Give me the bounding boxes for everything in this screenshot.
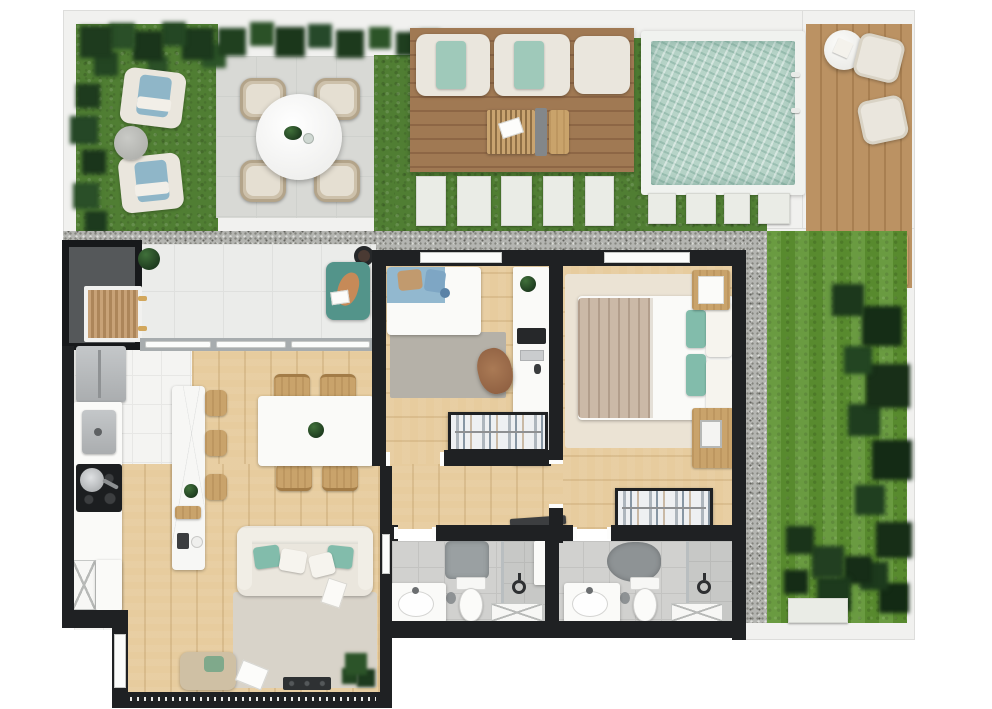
door-jamb — [549, 504, 563, 508]
master-window — [604, 252, 690, 263]
master-duvet-fold — [650, 298, 653, 418]
bay-window-left — [114, 634, 126, 688]
bath2-stone-mat — [607, 542, 661, 582]
lawn-white-pad — [788, 598, 848, 623]
bath2-bin — [620, 592, 630, 604]
cutting-board — [175, 506, 201, 519]
media-console — [283, 677, 331, 690]
wardrobe-rod — [455, 431, 542, 433]
sofa-backrest — [241, 528, 369, 544]
sliding-door-pane-3 — [291, 341, 370, 348]
island-plant — [184, 484, 198, 498]
bar-stool-1 — [205, 390, 227, 416]
floor-plan-canvas — [0, 0, 992, 709]
sofa-teal-cushion-1 — [253, 544, 282, 569]
wall-bath-top-c — [611, 525, 745, 541]
dining-chair-s2 — [322, 464, 358, 491]
bath2-basin — [572, 591, 608, 617]
bath1-basin — [398, 591, 434, 617]
wall-bath-bottom — [380, 621, 745, 638]
bath1-toilet-bowl — [459, 588, 483, 622]
bath2-faucet — [586, 587, 593, 594]
lattice-cabinet — [72, 560, 96, 610]
wall-living-kids — [372, 250, 386, 466]
door-jamb — [549, 460, 563, 464]
bath1-window-slit — [382, 534, 390, 574]
door-jamb — [440, 452, 444, 466]
desk-plant — [520, 276, 536, 292]
bath2-toilet-bowl — [633, 588, 657, 622]
bath1-bin — [446, 592, 456, 604]
master-teal-pillow-1 — [686, 310, 706, 348]
pool-ladder-rail-2 — [791, 108, 800, 113]
dining-chair-s1 — [276, 464, 312, 491]
wall-kids-bottom — [444, 450, 551, 466]
sofa-arm-right — [358, 528, 373, 590]
fridge — [76, 346, 126, 402]
door-jamb — [573, 527, 577, 539]
kids-window — [420, 252, 502, 263]
kids-toy — [440, 288, 450, 298]
monstera-leaf-icon — [284, 126, 302, 140]
wall-kids-master — [549, 266, 563, 462]
master-pillow-1 — [706, 303, 732, 357]
door-jamb — [607, 527, 611, 539]
garden-side-table — [114, 126, 148, 160]
master-blanket — [578, 298, 650, 418]
pet-bed-book — [330, 290, 350, 305]
nightstand-tray — [698, 276, 724, 304]
door-jamb — [432, 527, 436, 539]
bay-glass-door-track — [130, 697, 376, 701]
bar-stool-2 — [205, 430, 227, 456]
deck-lounger-3 — [574, 36, 630, 94]
daybed-green-pillow — [204, 656, 224, 672]
pool-water — [651, 41, 795, 185]
bath1-faucet — [412, 587, 419, 594]
bath1-shower-arm — [518, 573, 521, 580]
stepping-stone — [585, 176, 614, 226]
dining-centerpiece-plant — [308, 422, 324, 438]
terrace-plant — [138, 248, 160, 270]
sink-faucet — [94, 428, 102, 436]
door-jamb — [386, 452, 390, 466]
entry-bench-handle-2 — [138, 326, 147, 331]
wardrobe-rod — [622, 507, 707, 509]
deck-runner — [535, 108, 547, 156]
stepping-stone — [648, 193, 676, 224]
deck-side-bench — [549, 110, 569, 154]
frying-pan — [80, 468, 104, 492]
stepping-stone — [501, 176, 532, 226]
desk-keyboard — [520, 350, 544, 361]
master-wardrobe — [615, 488, 713, 528]
kids-wardrobe — [448, 412, 548, 452]
bath1-stone-mat — [445, 541, 489, 579]
dresser-frame — [700, 420, 722, 448]
sliding-door-pane-2 — [216, 341, 286, 348]
fridge-handle — [98, 350, 101, 398]
sofa-white-cushion-1 — [278, 548, 307, 574]
pool-ladder-rail-1 — [791, 72, 800, 77]
wall-right-exterior — [732, 250, 746, 640]
deck-lounger-1-towel — [436, 41, 466, 89]
wall-bath-top-b — [436, 525, 573, 541]
bath1-x-cabinet — [491, 603, 543, 622]
stepping-stone — [686, 193, 716, 224]
entry-bench-handle-1 — [138, 296, 147, 301]
patio-cup — [303, 133, 314, 144]
stepping-stone — [543, 176, 573, 226]
kitchen-cabinet — [96, 560, 122, 610]
desk-mouse — [534, 364, 541, 374]
sliding-door-pane-1 — [145, 341, 211, 348]
master-pillow-2 — [706, 360, 732, 414]
deck-lounger-2-towel — [514, 41, 544, 89]
desk-monitor — [517, 328, 546, 344]
side-lawn — [767, 231, 907, 623]
stepping-stone — [416, 176, 446, 226]
door-jamb — [394, 527, 398, 539]
bar-stool-3 — [205, 474, 227, 500]
entry-wood-bench — [88, 290, 138, 338]
master-teal-pillow-2 — [686, 354, 706, 396]
sofa-arm-left — [237, 528, 252, 590]
coffee-machine — [177, 533, 189, 549]
stepping-stone — [758, 193, 790, 224]
stepping-stone — [457, 176, 491, 226]
stepping-stone — [724, 193, 750, 224]
bath2-shower-arm — [703, 573, 706, 580]
wall-kitchen-left — [62, 346, 74, 612]
gravel-walkway-vertical — [745, 231, 767, 623]
kids-pillow-tan — [397, 269, 423, 291]
wall-bath-divider — [545, 541, 559, 624]
bath2-x-cabinet — [671, 603, 723, 622]
bath1-rain-head-icon — [512, 580, 526, 594]
coffee-cups — [191, 536, 203, 548]
bath2-rain-head-icon — [697, 580, 711, 594]
